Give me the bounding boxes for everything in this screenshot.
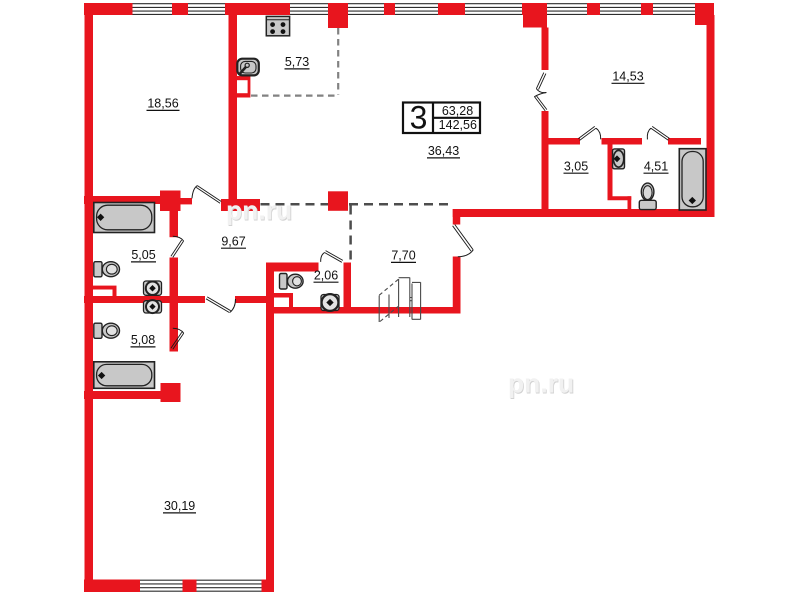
svg-text:5,08: 5,08 (131, 333, 155, 347)
svg-text:2,06: 2,06 (314, 268, 338, 282)
svg-text:18,56: 18,56 (147, 97, 178, 111)
svg-text:7,70: 7,70 (391, 249, 415, 263)
svg-text:5,05: 5,05 (131, 248, 155, 262)
svg-text:pn.ru: pn.ru (508, 369, 574, 399)
svg-text:14,53: 14,53 (612, 69, 643, 83)
svg-text:36,43: 36,43 (428, 144, 459, 158)
svg-text:63,28: 63,28 (442, 104, 473, 118)
svg-text:9,67: 9,67 (221, 234, 245, 248)
svg-text:4,51: 4,51 (644, 159, 668, 173)
svg-text:3: 3 (410, 100, 428, 136)
svg-text:3,05: 3,05 (564, 159, 588, 173)
svg-text:30,19: 30,19 (164, 499, 195, 513)
svg-text:5,73: 5,73 (285, 55, 309, 69)
svg-text:142,56: 142,56 (439, 118, 477, 132)
svg-text:pn.ru: pn.ru (226, 196, 292, 226)
